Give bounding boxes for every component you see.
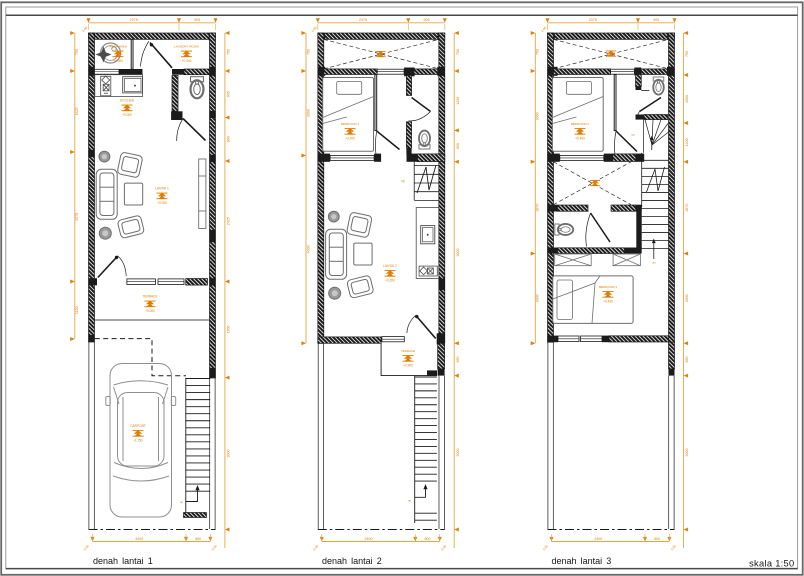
svg-text:2375: 2375 bbox=[589, 18, 597, 22]
svg-text:up: up bbox=[631, 133, 635, 137]
svg-text:+3.200: +3.200 bbox=[385, 279, 395, 283]
svg-text:KITCHEN: KITCHEN bbox=[120, 99, 135, 103]
svg-text:650: 650 bbox=[685, 356, 689, 362]
svg-text:1200: 1200 bbox=[685, 138, 689, 146]
svg-text:+0.000: +0.000 bbox=[113, 59, 123, 63]
svg-text:2800: 2800 bbox=[685, 294, 689, 302]
svg-text:3400: 3400 bbox=[135, 537, 143, 541]
svg-text:CARPORT: CARPORT bbox=[130, 424, 146, 428]
svg-text:LANTAI 2: LANTAI 2 bbox=[383, 264, 397, 268]
svg-text:1900: 1900 bbox=[227, 326, 231, 334]
svg-text:+0.000: +0.000 bbox=[145, 309, 155, 313]
svg-text:LAUNDRY ROOM: LAUNDRY ROOM bbox=[174, 45, 199, 49]
svg-text:905: 905 bbox=[227, 91, 231, 97]
svg-text:2425: 2425 bbox=[227, 217, 231, 225]
svg-text:2870: 2870 bbox=[685, 204, 689, 212]
svg-text:905: 905 bbox=[653, 18, 659, 22]
svg-text:4000: 4000 bbox=[306, 245, 310, 253]
svg-text:905: 905 bbox=[424, 18, 430, 22]
svg-text:2375: 2375 bbox=[359, 18, 367, 22]
svg-text:905: 905 bbox=[194, 18, 200, 22]
svg-text:750: 750 bbox=[227, 49, 231, 55]
svg-text:2375: 2375 bbox=[130, 18, 138, 22]
svg-text:2400: 2400 bbox=[594, 537, 602, 541]
svg-text:-0.150: -0.150 bbox=[133, 439, 142, 443]
svg-text:2870: 2870 bbox=[536, 204, 540, 212]
svg-text:+0.000: +0.000 bbox=[157, 201, 167, 205]
svg-text:3000: 3000 bbox=[685, 449, 689, 457]
svg-text:1500: 1500 bbox=[685, 95, 689, 103]
svg-text:800: 800 bbox=[425, 537, 431, 541]
svg-text:800: 800 bbox=[195, 537, 201, 541]
svg-text:up: up bbox=[408, 499, 412, 503]
svg-text:800: 800 bbox=[227, 136, 231, 142]
svg-text:LANTAI 1: LANTAI 1 bbox=[155, 187, 169, 191]
svg-text:denah lantai 3: denah lantai 3 bbox=[552, 556, 612, 566]
svg-text:BEDROOM 1: BEDROOM 1 bbox=[341, 122, 359, 126]
svg-text:3000: 3000 bbox=[227, 450, 231, 458]
svg-text:750: 750 bbox=[685, 51, 689, 57]
svg-text:+6.400: +6.400 bbox=[603, 300, 613, 304]
svg-text:BEDROOM 3: BEDROOM 3 bbox=[599, 285, 617, 289]
svg-text:750: 750 bbox=[536, 49, 540, 55]
svg-text:3000: 3000 bbox=[456, 449, 460, 457]
svg-text:750: 750 bbox=[456, 49, 460, 55]
svg-text:+3.200: +3.200 bbox=[345, 137, 355, 141]
svg-text:1150: 1150 bbox=[75, 306, 79, 314]
svg-text:+0.000: +0.000 bbox=[122, 113, 132, 117]
svg-text:+0.000: +0.000 bbox=[182, 59, 192, 63]
svg-text:1625: 1625 bbox=[75, 108, 79, 116]
svg-text:dn: dn bbox=[652, 261, 656, 265]
svg-text:600: 600 bbox=[456, 143, 460, 149]
svg-text:TERRACE: TERRACE bbox=[401, 349, 415, 353]
svg-text:1200: 1200 bbox=[456, 97, 460, 105]
svg-text:denah lantai 1: denah lantai 1 bbox=[93, 556, 153, 566]
svg-text:WASH AREA: WASH AREA bbox=[109, 45, 127, 49]
svg-text:750: 750 bbox=[306, 49, 310, 55]
svg-text:2575: 2575 bbox=[75, 213, 79, 221]
svg-text:up: up bbox=[401, 179, 405, 183]
svg-text:3000: 3000 bbox=[536, 112, 540, 120]
svg-text:650: 650 bbox=[456, 356, 460, 362]
svg-text:800: 800 bbox=[654, 537, 660, 541]
svg-text:+6.400: +6.400 bbox=[575, 137, 585, 141]
svg-text:+2.900: +2.900 bbox=[403, 364, 413, 368]
svg-text:TERRACE: TERRACE bbox=[142, 295, 157, 299]
svg-text:3000: 3000 bbox=[306, 109, 310, 117]
svg-text:750: 750 bbox=[75, 49, 79, 55]
svg-text:2400: 2400 bbox=[365, 537, 373, 541]
svg-text:up: up bbox=[180, 500, 184, 504]
svg-text:2800: 2800 bbox=[536, 294, 540, 302]
svg-text:3600: 3600 bbox=[456, 249, 460, 257]
svg-text:skala 1:50: skala 1:50 bbox=[749, 559, 794, 569]
svg-text:denah lantai 2: denah lantai 2 bbox=[322, 556, 382, 566]
svg-text:BEDROOM 2: BEDROOM 2 bbox=[571, 122, 589, 126]
